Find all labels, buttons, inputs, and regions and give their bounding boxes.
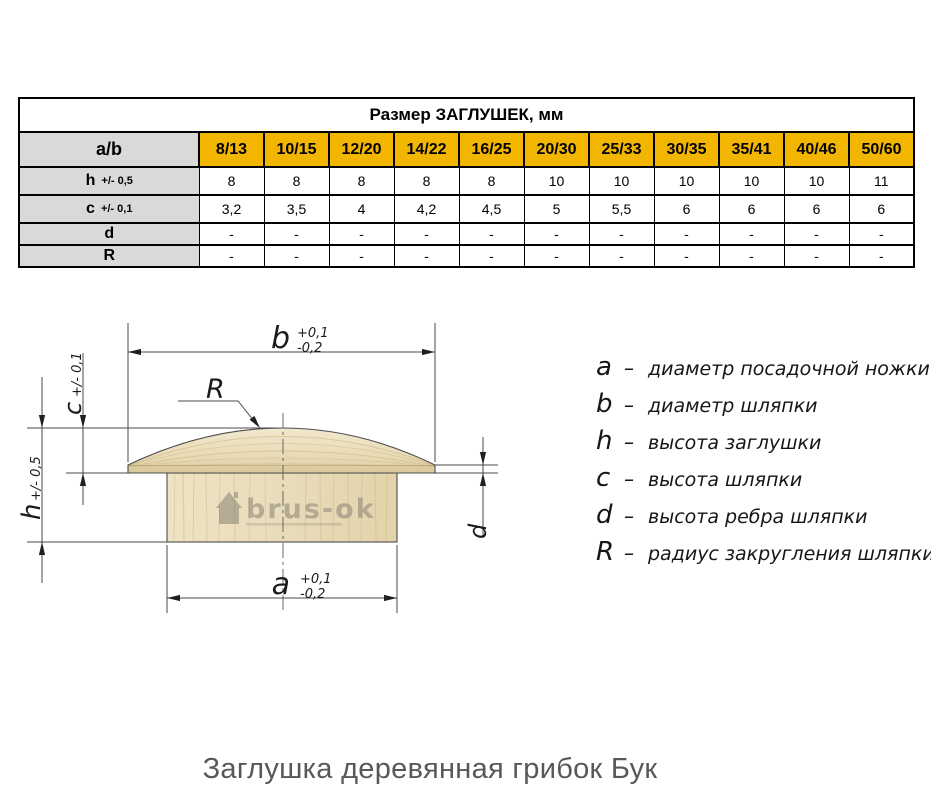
legend-item-h: h – высота заглушки bbox=[596, 426, 926, 463]
size-header-cell: 16/25 bbox=[459, 132, 524, 167]
size-header-cell: 35/41 bbox=[719, 132, 784, 167]
row-label-R: R bbox=[19, 245, 199, 267]
table-header-row: a/b 8/13 10/15 12/20 14/22 16/25 20/30 2… bbox=[19, 132, 914, 167]
value-cell: 3,5 bbox=[264, 195, 329, 223]
value-cell: 8 bbox=[329, 167, 394, 195]
dim-h-tolerance: +/- 0,5 bbox=[29, 456, 44, 501]
value-cell: 5,5 bbox=[589, 195, 654, 223]
value-cell: 3,2 bbox=[199, 195, 264, 223]
table-row-R: R - - - - - - - - - - - bbox=[19, 245, 914, 267]
dim-c-letter: c bbox=[59, 402, 87, 415]
value-cell: - bbox=[394, 223, 459, 245]
value-cell: 10 bbox=[589, 167, 654, 195]
value-cell: 10 bbox=[524, 167, 589, 195]
page-caption: Заглушка деревянная грибок Бук bbox=[0, 753, 860, 786]
value-cell: 8 bbox=[199, 167, 264, 195]
dim-b-tol-plus: +0,1 bbox=[297, 326, 329, 341]
table-title: Размер ЗАГЛУШЕК, мм bbox=[19, 98, 914, 132]
legend-dash: – bbox=[624, 393, 648, 417]
value-cell: - bbox=[264, 245, 329, 267]
value-cell: - bbox=[589, 245, 654, 267]
value-cell: - bbox=[654, 223, 719, 245]
value-cell: - bbox=[459, 245, 524, 267]
legend-item-R: R – радиус закругления шляпки bbox=[596, 537, 926, 574]
legend-dash: – bbox=[624, 467, 648, 491]
value-cell: - bbox=[849, 223, 914, 245]
legend-symbol: a bbox=[596, 352, 624, 382]
dimension-a: a +0,1 -0,2 bbox=[167, 545, 397, 613]
value-cell: 4,5 bbox=[459, 195, 524, 223]
legend-text: высота шляпки bbox=[648, 469, 802, 491]
value-cell: 6 bbox=[784, 195, 849, 223]
legend-symbol: R bbox=[596, 537, 624, 567]
plug-size-table: Размер ЗАГЛУШЕК, мм a/b 8/13 10/15 12/20… bbox=[18, 97, 915, 268]
dim-R-letter: R bbox=[206, 374, 225, 405]
spec-sheet-page: Размер ЗАГЛУШЕК, мм a/b 8/13 10/15 12/20… bbox=[0, 0, 931, 800]
legend-text: высота ребра шляпки bbox=[648, 506, 867, 528]
value-cell: - bbox=[654, 245, 719, 267]
table-row-d: d - - - - - - - - - - - bbox=[19, 223, 914, 245]
legend-text: радиус закругления шляпки bbox=[648, 543, 931, 565]
dimension-d: d bbox=[464, 437, 492, 539]
dim-b-tol-minus: -0,2 bbox=[297, 341, 322, 356]
table-row-h: h+/- 0,5 8 8 8 8 8 10 10 10 10 10 11 bbox=[19, 167, 914, 195]
legend-item-d: d – высота ребра шляпки bbox=[596, 500, 926, 537]
row-label-d: d bbox=[19, 223, 199, 245]
plug-dimension-drawing: brus-ok b +0,1 -0,2 R bbox=[10, 315, 520, 625]
value-cell: - bbox=[264, 223, 329, 245]
dim-b-letter: b bbox=[271, 321, 290, 356]
value-cell: - bbox=[524, 223, 589, 245]
value-cell: - bbox=[589, 223, 654, 245]
value-cell: 4,2 bbox=[394, 195, 459, 223]
legend-dash: – bbox=[624, 356, 648, 380]
dimension-legend: a – диаметр посадочной ножки b – диаметр… bbox=[596, 352, 926, 574]
legend-dash: – bbox=[624, 504, 648, 528]
value-cell: - bbox=[784, 223, 849, 245]
value-cell: 6 bbox=[719, 195, 784, 223]
row-label-h: h+/- 0,5 bbox=[19, 167, 199, 195]
legend-item-a: a – диаметр посадочной ножки bbox=[596, 352, 926, 389]
value-cell: - bbox=[199, 223, 264, 245]
value-cell: - bbox=[719, 223, 784, 245]
dim-h-letter: h bbox=[17, 504, 47, 520]
size-header-cell: 10/15 bbox=[264, 132, 329, 167]
value-cell: 6 bbox=[849, 195, 914, 223]
value-cell: - bbox=[459, 223, 524, 245]
plug-body: brus-ok bbox=[128, 428, 435, 542]
value-cell: - bbox=[329, 245, 394, 267]
legend-text: диаметр шляпки bbox=[648, 395, 818, 417]
legend-symbol: h bbox=[596, 426, 624, 456]
table-title-row: Размер ЗАГЛУШЕК, мм bbox=[19, 98, 914, 132]
legend-dash: – bbox=[624, 541, 648, 565]
legend-text: диаметр посадочной ножки bbox=[648, 358, 930, 380]
legend-symbol: b bbox=[596, 389, 624, 419]
value-cell: - bbox=[329, 223, 394, 245]
dim-a-tol-minus: -0,2 bbox=[300, 587, 325, 602]
value-cell: - bbox=[849, 245, 914, 267]
dim-a-tol-plus: +0,1 bbox=[300, 572, 332, 587]
dim-c-tolerance: +/- 0,1 bbox=[70, 352, 85, 397]
row-tolerance: +/- 0,5 bbox=[101, 175, 133, 187]
value-cell: 6 bbox=[654, 195, 719, 223]
size-header-cell: 30/35 bbox=[654, 132, 719, 167]
value-cell: 11 bbox=[849, 167, 914, 195]
dim-d-letter: d bbox=[464, 523, 492, 539]
size-header-cell: 25/33 bbox=[589, 132, 654, 167]
size-header-cell: 50/60 bbox=[849, 132, 914, 167]
value-cell: 8 bbox=[459, 167, 524, 195]
table-row-c: c+/- 0,1 3,2 3,5 4 4,2 4,5 5 5,5 6 6 6 6 bbox=[19, 195, 914, 223]
value-cell: - bbox=[394, 245, 459, 267]
dimension-c: c +/- 0,1 bbox=[59, 352, 87, 505]
legend-symbol: d bbox=[596, 500, 624, 530]
value-cell: 4 bbox=[329, 195, 394, 223]
row-tolerance: +/- 0,1 bbox=[101, 203, 133, 215]
watermark-text: brus-ok bbox=[246, 494, 376, 525]
size-header-cell: 14/22 bbox=[394, 132, 459, 167]
size-header-cell: 12/20 bbox=[329, 132, 394, 167]
value-cell: 8 bbox=[264, 167, 329, 195]
dim-a-letter: a bbox=[272, 567, 290, 602]
corner-header-cell: a/b bbox=[19, 132, 199, 167]
row-label-c: c+/- 0,1 bbox=[19, 195, 199, 223]
size-header-cell: 40/46 bbox=[784, 132, 849, 167]
size-header-cell: 8/13 bbox=[199, 132, 264, 167]
dimension-h: h +/- 0,5 bbox=[17, 377, 47, 583]
value-cell: 10 bbox=[719, 167, 784, 195]
value-cell: 10 bbox=[784, 167, 849, 195]
value-cell: 5 bbox=[524, 195, 589, 223]
legend-item-c: c – высота шляпки bbox=[596, 463, 926, 500]
legend-dash: – bbox=[624, 430, 648, 454]
legend-text: высота заглушки bbox=[648, 432, 821, 454]
size-header-cell: 20/30 bbox=[524, 132, 589, 167]
dimension-R: R bbox=[178, 374, 262, 430]
value-cell: - bbox=[784, 245, 849, 267]
value-cell: 10 bbox=[654, 167, 719, 195]
value-cell: 8 bbox=[394, 167, 459, 195]
value-cell: - bbox=[719, 245, 784, 267]
value-cell: - bbox=[199, 245, 264, 267]
legend-symbol: c bbox=[596, 463, 624, 493]
legend-item-b: b – диаметр шляпки bbox=[596, 389, 926, 426]
value-cell: - bbox=[524, 245, 589, 267]
